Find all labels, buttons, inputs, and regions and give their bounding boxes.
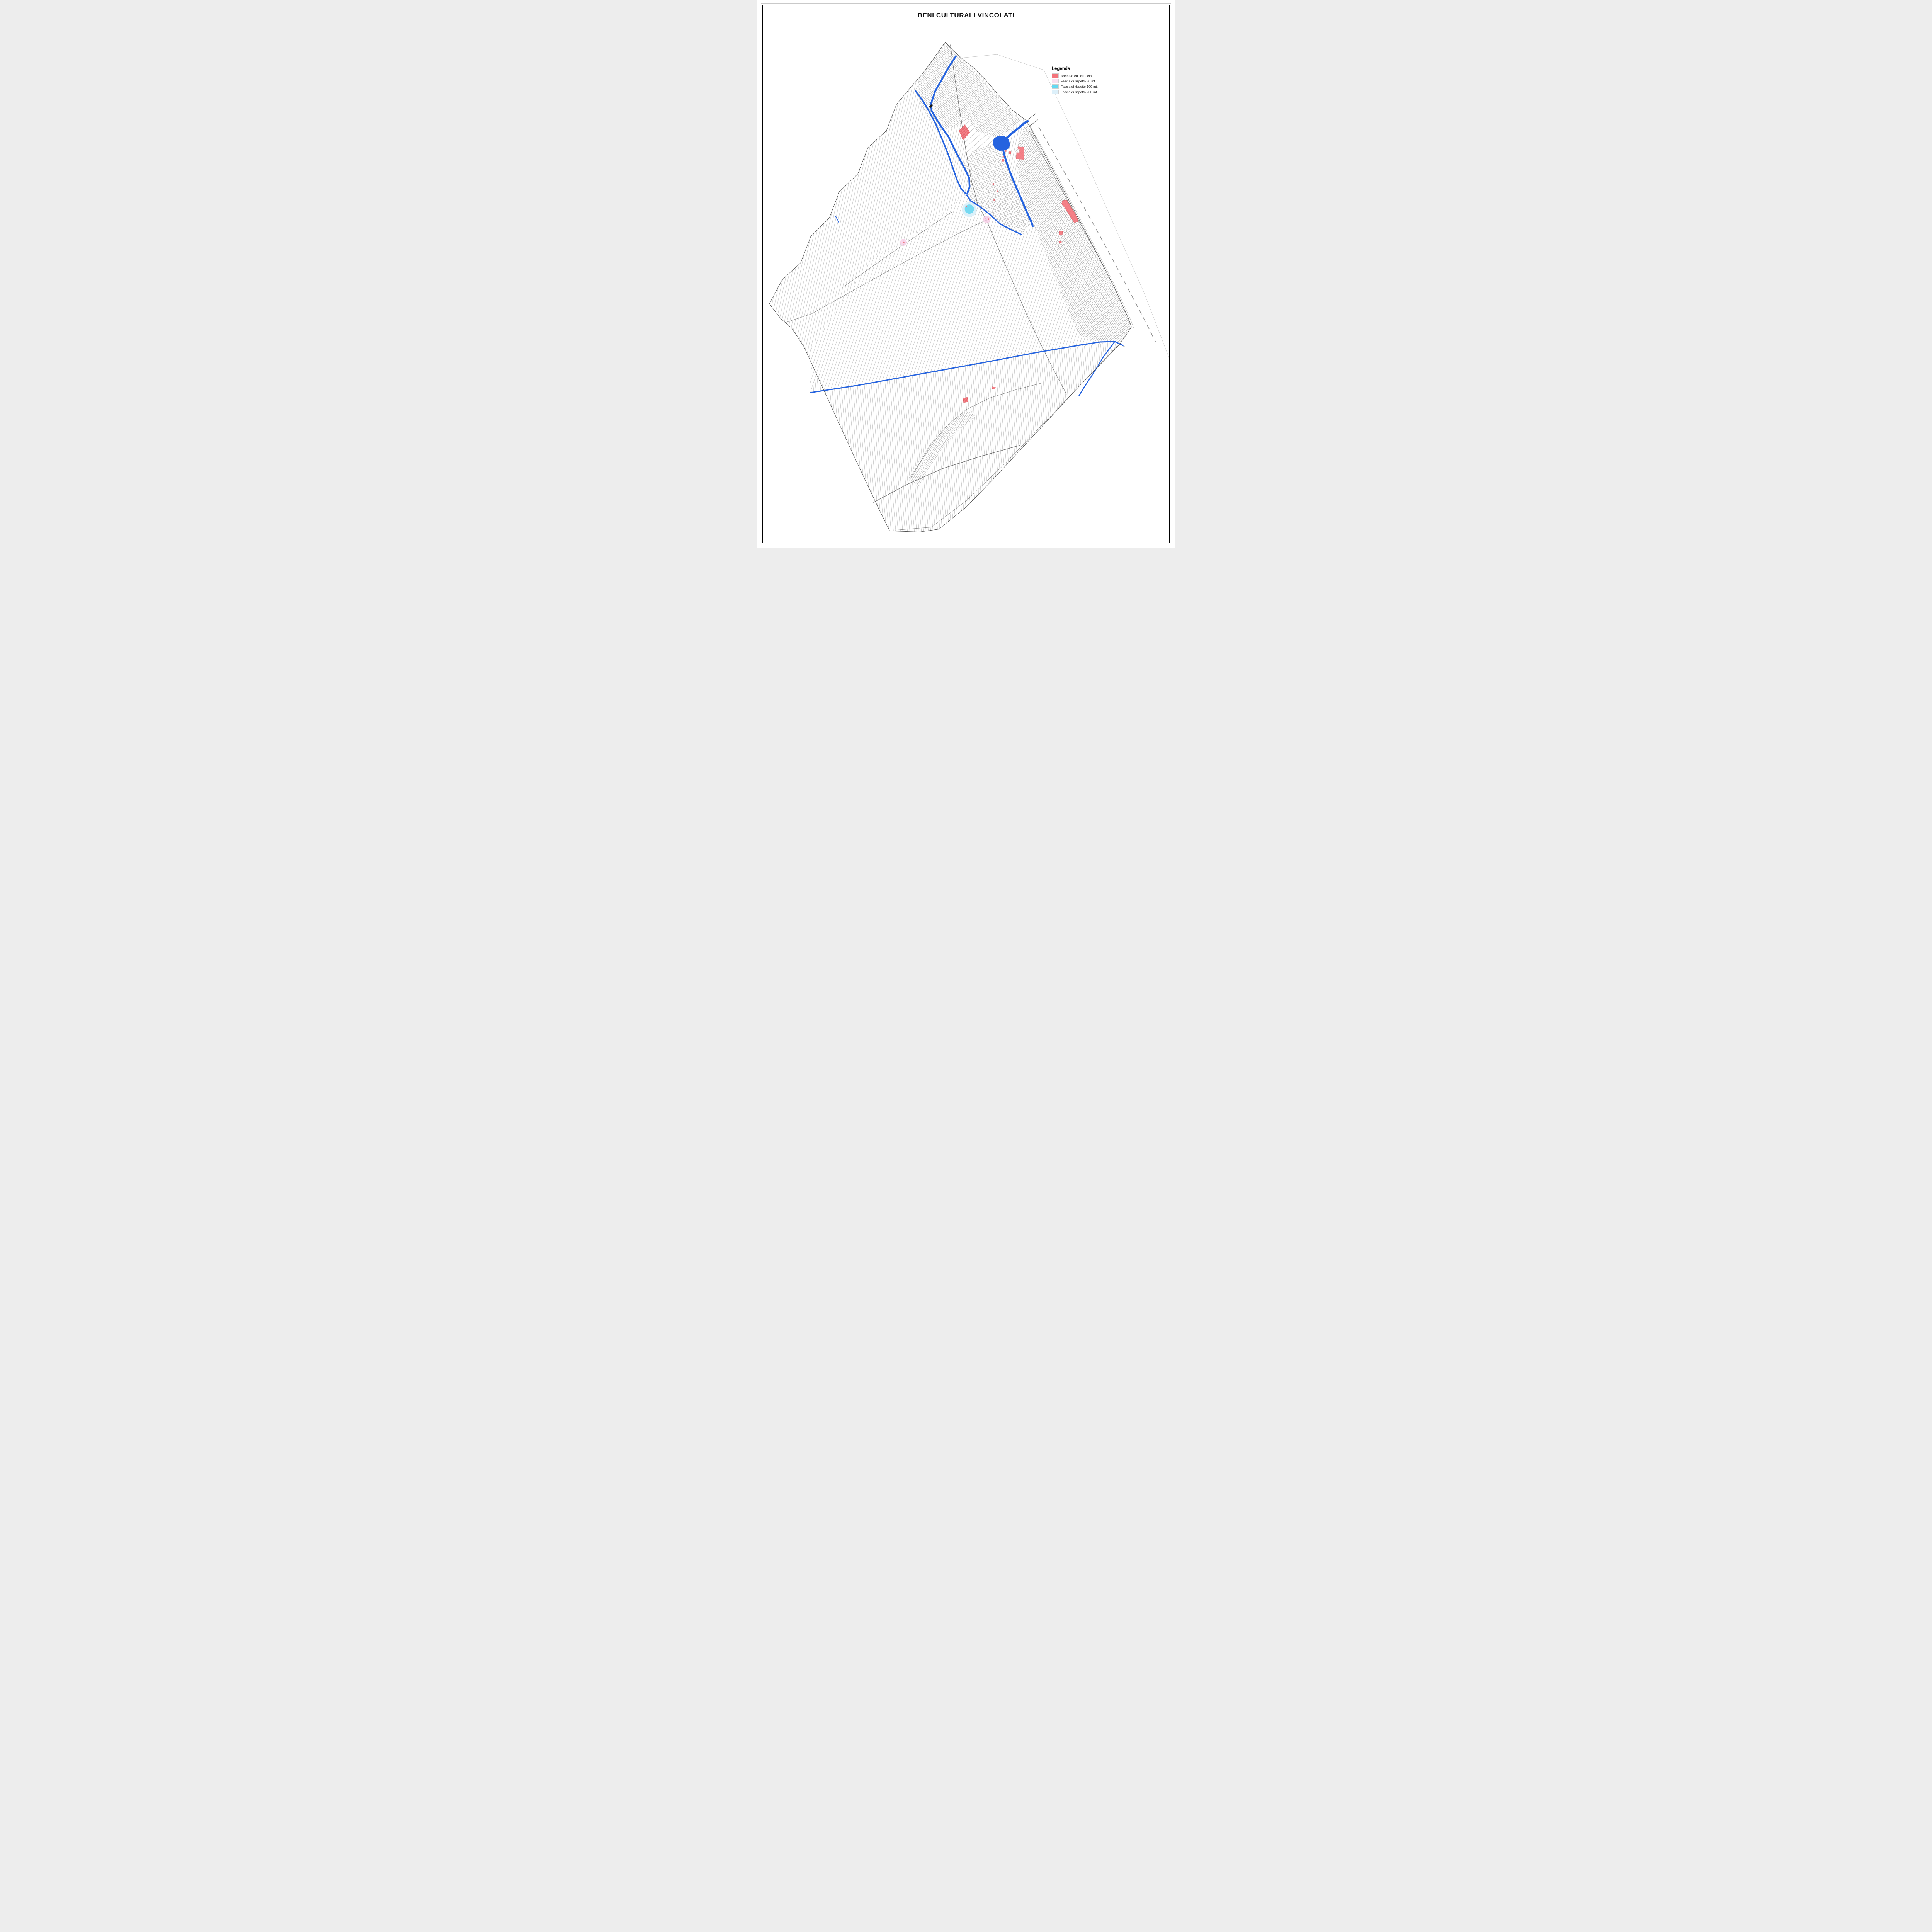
protected-building-6 (994, 199, 995, 201)
legend-swatch-fascia-200-icon (1052, 90, 1059, 94)
fascia-50-mt-a (983, 216, 990, 223)
legend-item-fascia-100: Fascia di rispetto 100 mt. (1052, 85, 1141, 88)
map-page: BENI CULTURALI VINCOLATI Legenda Aree e/… (757, 0, 1175, 548)
protected-building-10 (903, 242, 904, 243)
protected-building-3 (1002, 159, 1004, 161)
legend-label: Aree e/o edifici tutelati (1061, 74, 1094, 78)
legend-item-fascia-200: Fascia di rispetto 200 mt. (1052, 90, 1141, 94)
edificio-borgo-est (992, 387, 996, 389)
colonia-sud (1059, 231, 1063, 235)
protected-building-8 (966, 206, 967, 207)
protected-building-5 (993, 184, 994, 185)
protected-building-9 (988, 219, 989, 220)
legend-title: Legenda (1052, 66, 1141, 71)
pier-1 (1030, 120, 1038, 126)
legend-item-tutelati: Aree e/o edifici tutelati (1052, 74, 1141, 78)
protected-building-7 (1059, 241, 1061, 243)
pier-0 (1028, 114, 1036, 119)
chiesa-borgo-hatch (963, 397, 968, 403)
legend-label: Fascia di rispetto 100 mt. (1061, 85, 1098, 88)
legend-label: Fascia di rispetto 50 mt. (1061, 79, 1096, 83)
legend-item-fascia-50: Fascia di rispetto 50 mt. (1052, 79, 1141, 83)
protected-building-4 (997, 191, 998, 192)
legend-swatch-tutelati-icon (1052, 73, 1059, 78)
protected-building-2 (1003, 156, 1004, 157)
legend-label: Fascia di rispetto 200 mt. (1061, 90, 1098, 94)
legend-swatch-fascia-100-icon (1052, 84, 1059, 89)
legend-swatch-fascia-50-icon (1052, 79, 1059, 83)
protected-building-1 (1005, 150, 1006, 151)
legend: Legenda Aree e/o edifici tutelati Fascia… (1052, 66, 1141, 95)
page-title: BENI CULTURALI VINCOLATI (757, 12, 1175, 19)
protected-building-0 (1009, 152, 1011, 154)
